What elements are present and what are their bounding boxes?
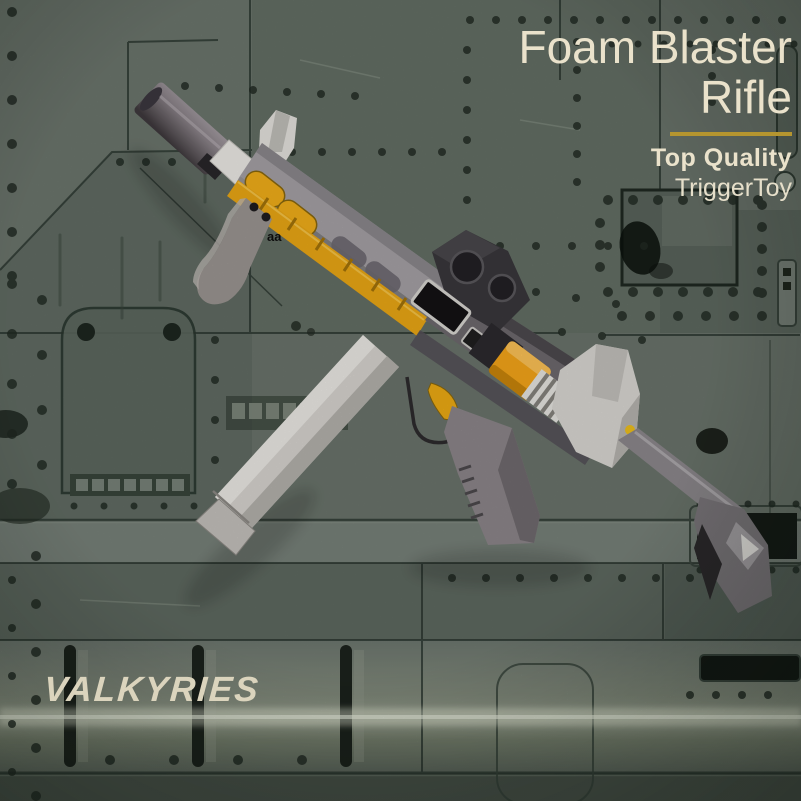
product-title-line2: Rifle (518, 74, 792, 120)
quality-tagline: Top Quality (518, 146, 792, 171)
gold-divider (670, 132, 792, 136)
product-title: Foam Blaster Rifle Top Quality TriggerTo… (518, 24, 792, 201)
product-image: Foam Blaster Rifle Top Quality TriggerTo… (0, 0, 801, 801)
product-title-line1: Foam Blaster (518, 24, 792, 70)
watermark-text: VALKYRIES (43, 670, 262, 710)
stray-mark: aa (267, 229, 281, 244)
brand-name: TriggerToy (518, 176, 792, 201)
